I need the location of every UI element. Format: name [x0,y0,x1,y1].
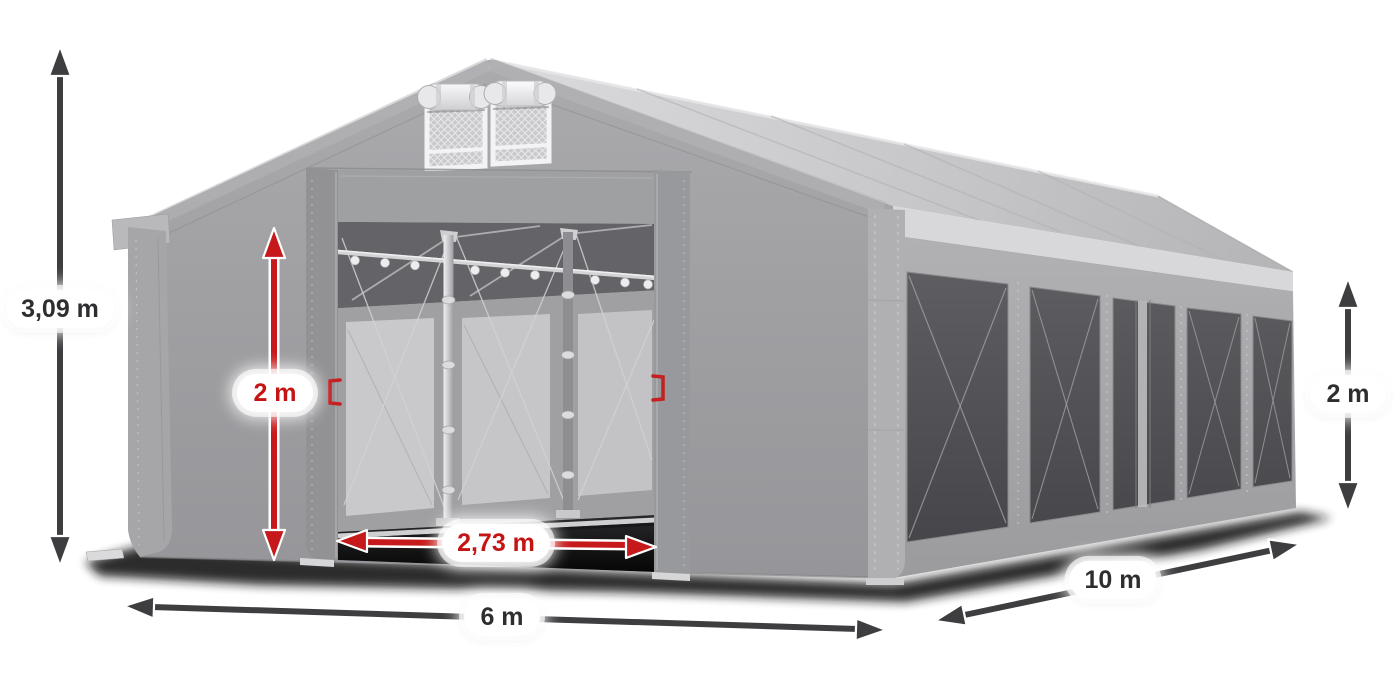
left-corner-post [86,214,172,561]
front-right-corner-post [866,208,905,585]
vent-window-left [418,84,493,169]
dim-label-entrance-width: 2,73 m [442,524,550,562]
side-window-4 [1187,308,1241,498]
side-window-1 [907,272,1008,542]
dim-label-entrance-height: 2 m [237,374,313,412]
dim-label-side-length: 10 m [1070,561,1157,599]
dim-label-total-height: 3,09 m [6,290,114,328]
side-window-2 [1030,287,1100,523]
dim-label-side-wall-height: 2 m [1310,375,1386,413]
side-window-3 [1113,298,1175,510]
tent-product-diagram: 3,09 m 2 m 2,73 m 6 m 10 m 2 m [0,0,1400,700]
tent-illustration [0,0,1400,700]
side-window-5 [1253,316,1292,487]
entrance-interior [338,222,656,572]
vent-window-right [484,81,556,164]
dim-label-front-width: 6 m [464,598,540,636]
entrance-header [308,168,692,224]
